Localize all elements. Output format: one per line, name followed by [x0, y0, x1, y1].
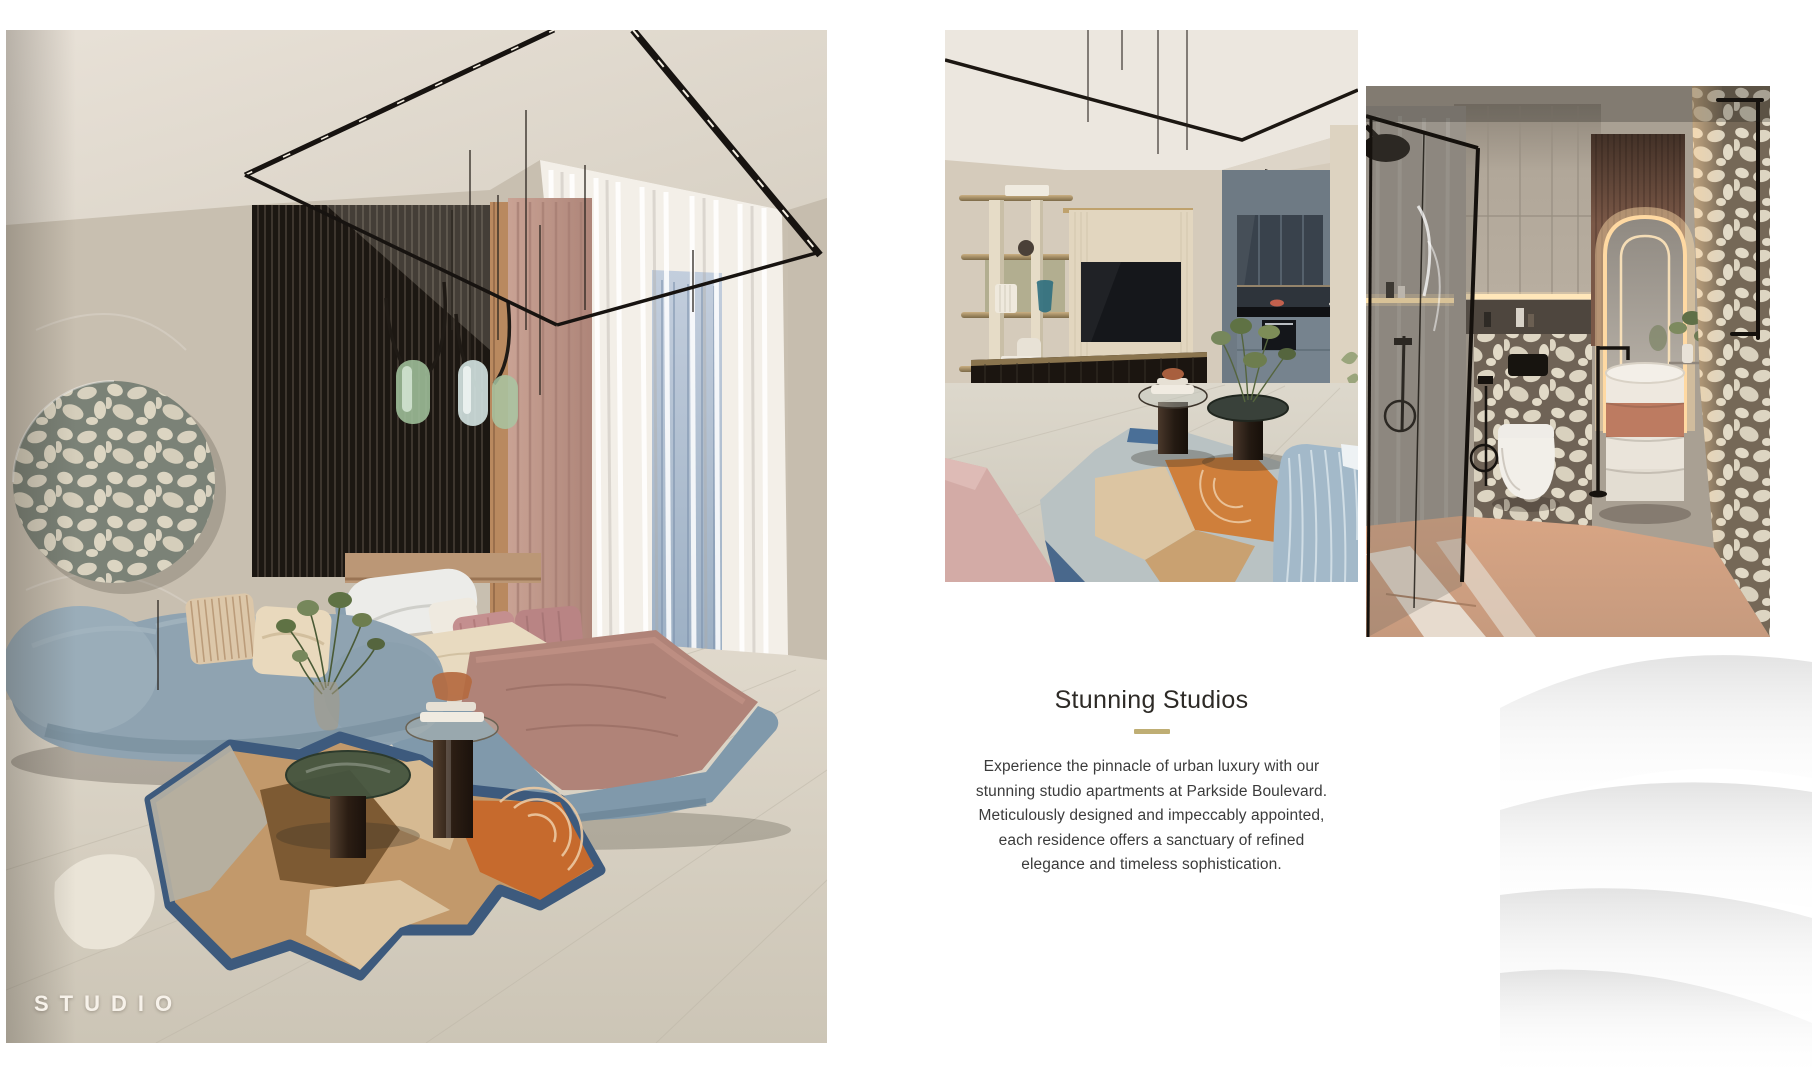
paragraph-line: stunning studio apartments at Parkside B…: [945, 780, 1358, 805]
section-paragraph: Experience the pinnacle of urban luxury …: [945, 755, 1358, 878]
studio-bedroom-illustration: [6, 30, 827, 1043]
corner-wave-decoration: [1500, 628, 1812, 1080]
bathroom-photo: [1366, 86, 1770, 637]
studio-bedroom-photo: STUDIO: [6, 30, 827, 1043]
section-heading: Stunning Studios: [945, 684, 1358, 716]
studio-label: STUDIO: [34, 991, 183, 1017]
living-room-illustration: [945, 30, 1358, 582]
paragraph-line: Experience the pinnacle of urban luxury …: [945, 755, 1358, 780]
gold-divider: [1134, 729, 1170, 734]
paragraph-line: Meticulously designed and impeccably app…: [945, 804, 1358, 829]
living-room-photo: [945, 30, 1358, 582]
section-text: Stunning Studios Experience the pinnacle…: [945, 684, 1358, 878]
bathroom-illustration: [1366, 86, 1770, 637]
paragraph-line: each residence offers a sanctuary of ref…: [945, 829, 1358, 854]
paragraph-line: elegance and timeless sophistication.: [945, 853, 1358, 878]
